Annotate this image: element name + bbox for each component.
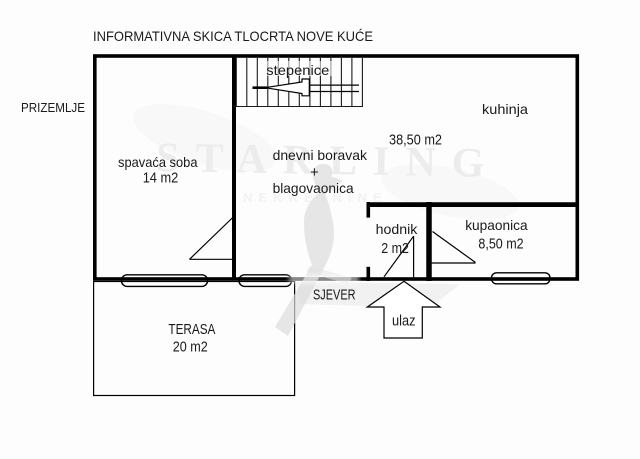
svg-text:2 m2: 2 m2 xyxy=(381,240,409,257)
svg-text:stepenice: stepenice xyxy=(266,62,329,78)
svg-text:14 m2: 14 m2 xyxy=(143,170,179,187)
svg-text:blagovaonica: blagovaonica xyxy=(273,180,354,196)
svg-text:TERASA: TERASA xyxy=(168,321,215,338)
svg-text:hodnik: hodnik xyxy=(376,221,419,237)
svg-text:20 m2: 20 m2 xyxy=(173,339,208,356)
svg-text:kuhinja: kuhinja xyxy=(482,101,528,117)
svg-text:38,50 m2: 38,50 m2 xyxy=(389,132,442,149)
svg-text:spavaća soba: spavaća soba xyxy=(118,154,198,170)
svg-text:INFORMATIVNA SKICA TLOCRTA NOV: INFORMATIVNA SKICA TLOCRTA NOVE KUĆE xyxy=(93,28,373,44)
svg-text:8,50 m2: 8,50 m2 xyxy=(478,236,523,253)
svg-text:dnevni boravak: dnevni boravak xyxy=(273,147,368,163)
svg-text:PRIZEMLJE: PRIZEMLJE xyxy=(21,100,85,115)
svg-text:kupaonica: kupaonica xyxy=(465,217,528,233)
svg-text:ulaz: ulaz xyxy=(392,314,416,330)
svg-text:+: + xyxy=(310,164,319,181)
svg-text:SJEVER: SJEVER xyxy=(313,288,356,304)
